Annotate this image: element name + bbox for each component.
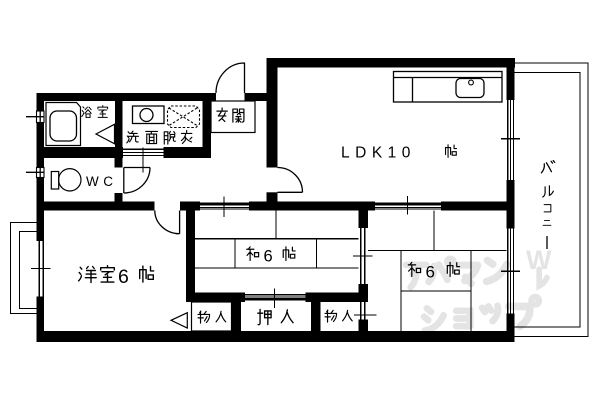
svg-text:6: 6 (118, 266, 129, 288)
svg-text:W: W (526, 245, 552, 275)
svg-text:LDK10: LDK10 (341, 145, 416, 162)
svg-text:6: 6 (264, 248, 273, 266)
svg-text:6: 6 (426, 263, 435, 282)
svg-text:WC: WC (86, 174, 118, 189)
